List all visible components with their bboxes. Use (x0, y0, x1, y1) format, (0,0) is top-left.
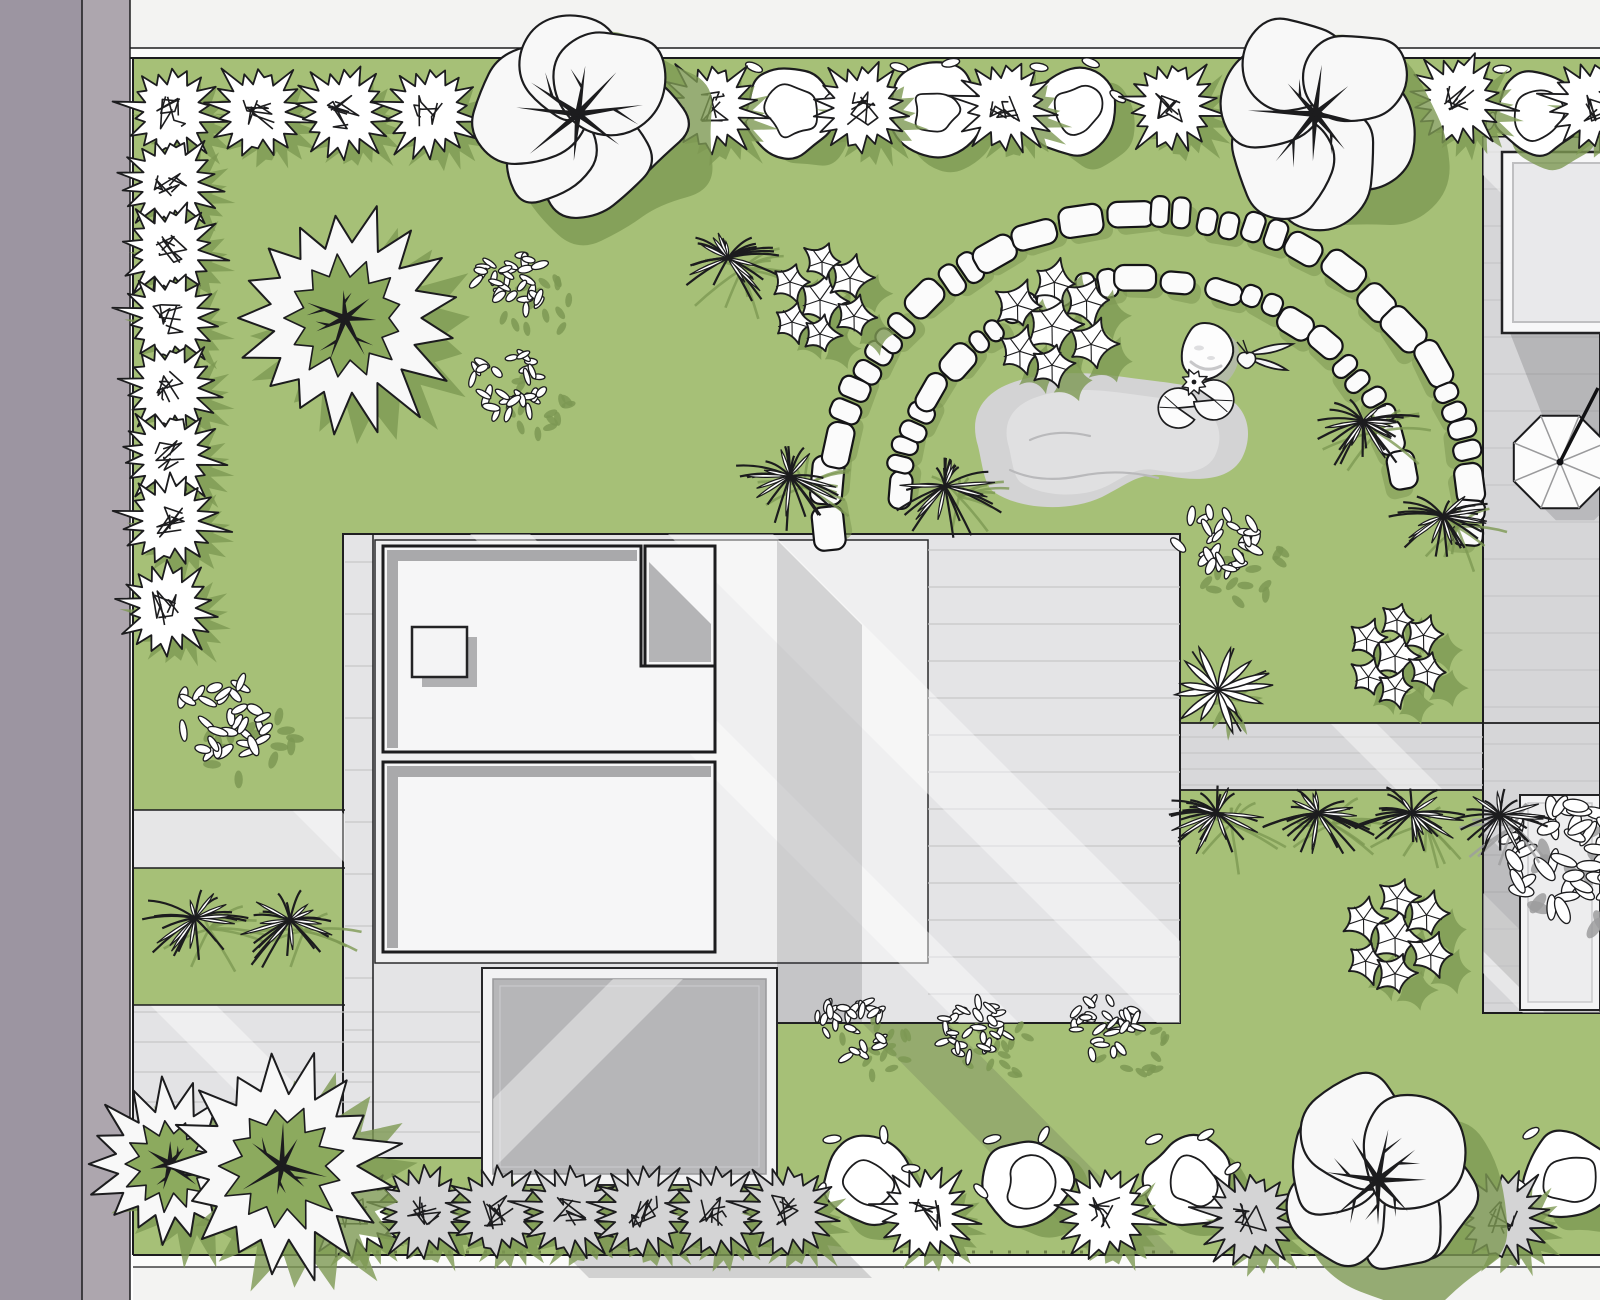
skylight (412, 627, 477, 687)
landscape-plan (0, 0, 1600, 1300)
outdoor-table (1502, 152, 1600, 333)
garage (482, 968, 777, 1185)
house-wing (383, 762, 715, 952)
house (383, 546, 715, 952)
walkway (1180, 723, 1483, 790)
garden-plan-canvas (0, 0, 1600, 1300)
road-asphalt (0, 0, 82, 1300)
